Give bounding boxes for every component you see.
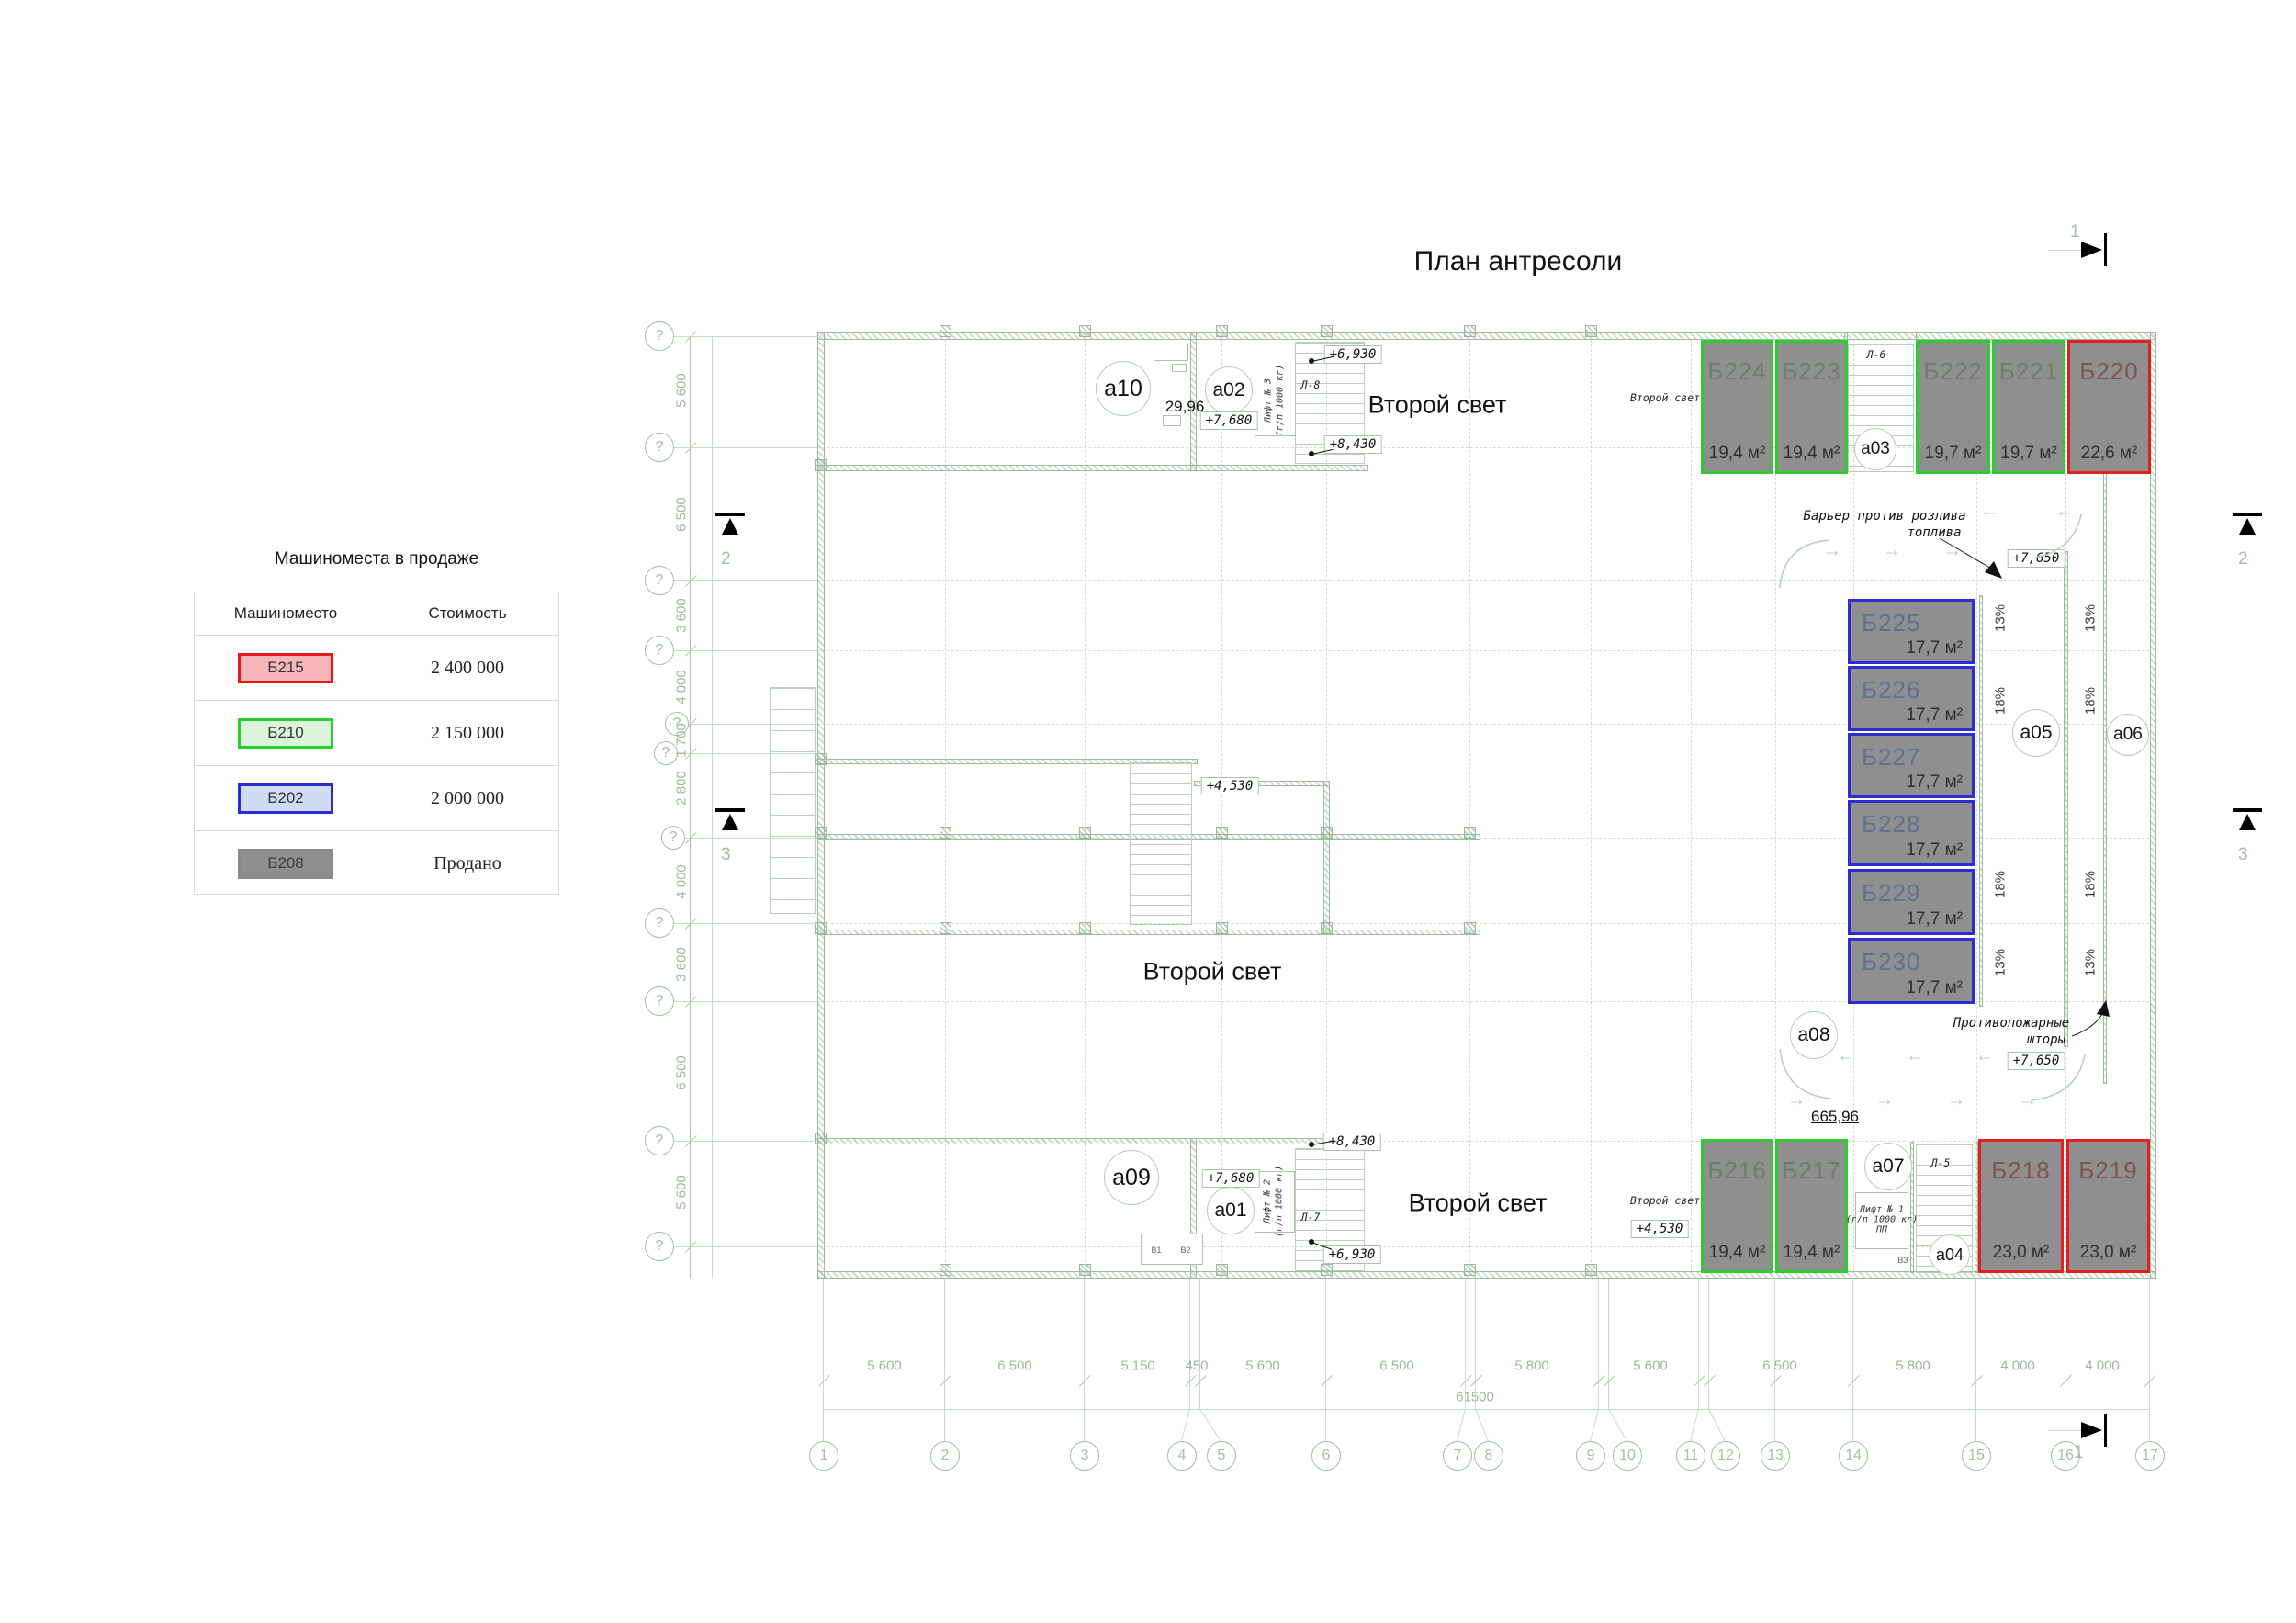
dimension-line (712, 336, 713, 1279)
grid-extension-line (674, 1141, 817, 1142)
dimension-label: 5 800 (1896, 1358, 1930, 1374)
plan-text: Лифт № 2 (1263, 1179, 1273, 1223)
grid-extension-line (1598, 1279, 1599, 1409)
grid-bubble-leader (1475, 1409, 1489, 1441)
stall-area: 17,7 м² (1906, 909, 1963, 930)
plan-text: 665,96 (1811, 1108, 1859, 1126)
grid-extension-line (674, 923, 817, 924)
grid-line-vertical (1221, 340, 1222, 1271)
drive-arrow: ← (1837, 1046, 1855, 1067)
grid-line-vertical (1976, 340, 1977, 1271)
column-mark (1321, 922, 1333, 934)
grid-bubble-4: 4 (1167, 1441, 1197, 1471)
shaft (1154, 344, 1188, 361)
stall-label: Б223 (1778, 357, 1845, 386)
stall-area: 19,4 м² (1704, 444, 1771, 464)
grid-bubble-13: 13 (1761, 1441, 1790, 1471)
wall (2064, 551, 2068, 1047)
grid-line-vertical (1691, 340, 1692, 1271)
grid-bubble-12: 12 (1711, 1441, 1740, 1471)
grid-line-vertical (1085, 340, 1086, 1271)
section-marker-bar (2104, 1414, 2107, 1447)
grid-bubble-letter: ? (645, 986, 674, 1016)
column-mark (1216, 325, 1228, 337)
slope-label: 18% (1993, 687, 2009, 715)
drive-arrow: → (2019, 1090, 2037, 1111)
drive-arrow: → (1947, 1090, 1965, 1111)
slope-label: 13% (2083, 604, 2099, 632)
stall-area: 19,7 м² (1919, 444, 1987, 464)
column-mark (1216, 827, 1228, 839)
grid-bubble-letter: ? (645, 321, 674, 351)
drawing-canvas: План антресоли Машиноместа в продаже Маш… (0, 0, 2296, 1623)
dimension-label: 1 700 (674, 723, 690, 758)
grid-bubble-6: 6 (1311, 1441, 1341, 1471)
grid-bubble-leader (1708, 1409, 1726, 1441)
dimension-label: 4 000 (674, 670, 690, 704)
plan-text: Второй свет (1630, 1194, 1700, 1207)
plan-text: Л-5 (1931, 1156, 1951, 1169)
drive-arrow: → (1883, 541, 1901, 562)
grid-bubble-10: 10 (1613, 1441, 1642, 1471)
stall-label: Б224 (1704, 357, 1771, 386)
grid-extension-line (1774, 1279, 1775, 1409)
dimension-label: 6 500 (674, 1055, 690, 1090)
dimension-label: 5 600 (1633, 1358, 1668, 1374)
stall-area: 17,7 м² (1906, 705, 1963, 726)
room-tag-а01: а01 (1207, 1187, 1255, 1234)
grid-extension-line (1199, 1279, 1200, 1409)
column-mark (815, 459, 827, 471)
column-mark (1079, 325, 1091, 337)
plan-text: В1 (1151, 1245, 1161, 1255)
column-mark (815, 1133, 827, 1144)
section-marker-arrow (722, 518, 738, 535)
section-marker-arrow (722, 814, 738, 830)
grid-extension-line (678, 753, 817, 754)
grid-extension-line (1708, 1279, 1709, 1409)
stall-label: Б229 (1862, 879, 1972, 907)
plan-text: (г/п 1000 кг) (1275, 1166, 1285, 1237)
grid-extension-line (944, 1279, 945, 1409)
stall-Б229: Б22917,7 м² (1848, 869, 1975, 935)
stall-area: 17,7 м² (1906, 840, 1963, 861)
grid-extension-line (1084, 1279, 1085, 1409)
dimension-label: 6 500 (1762, 1358, 1797, 1374)
elevation-mark: +7,650 (2008, 549, 2065, 568)
grid-line-vertical (945, 340, 946, 1271)
grid-extension-line (674, 1001, 817, 1002)
section-marker-bar (715, 513, 745, 516)
grid-extension-line (1852, 1279, 1853, 1409)
grid-bubble-leader (1774, 1409, 1775, 1441)
room-tag-а03: а03 (1854, 428, 1896, 470)
column-mark (1216, 1264, 1228, 1276)
drive-arrow: → (1875, 1090, 1894, 1111)
dimension-line (824, 1381, 2150, 1381)
room-tag-а08: а08 (1790, 1011, 1838, 1059)
grid-extension-line (1465, 1279, 1466, 1409)
grid-bubble-leader (944, 1409, 945, 1441)
wall (817, 1138, 1368, 1144)
column-mark (940, 827, 951, 839)
column-mark (940, 1264, 951, 1276)
stall-label: Б227 (1862, 743, 1972, 772)
elevation-mark: +8,430 (1324, 435, 1382, 454)
dimension-label: 5 150 (1120, 1358, 1155, 1374)
dimension-label: 6 500 (674, 497, 690, 532)
slope-label: 18% (2083, 871, 2099, 898)
plan-text: Барьер против розлива (1803, 509, 1965, 524)
stall-area: 19,4 м² (1778, 1243, 1845, 1263)
plan-text: (г/п 1000 кг) (1276, 365, 1286, 436)
column-mark (1585, 1264, 1597, 1276)
column-mark (1079, 922, 1091, 934)
grid-bubble-5: 5 (1207, 1441, 1236, 1471)
wall (2150, 332, 2156, 1279)
stall-label: Б226 (1862, 676, 1972, 704)
column-mark (815, 753, 827, 765)
grid-bubble-letter: ? (645, 1126, 674, 1155)
shaft (1163, 415, 1181, 426)
dimension-label: 3 600 (674, 947, 690, 982)
stall-Б223: Б22319,4 м² (1775, 340, 1848, 474)
room-tag-а10: а10 (1096, 361, 1151, 416)
plan-text: ПП (1876, 1225, 1887, 1235)
floor-plan: Б22419,4 м²Б22319,4 м²Б22219,7 м²Б22119,… (0, 0, 2296, 1623)
plan-text: Второй свет (1143, 958, 1282, 986)
section-marker-number: 1 (2070, 222, 2080, 242)
section-marker-leader (2048, 1430, 2081, 1431)
grid-bubble-11: 11 (1676, 1441, 1705, 1471)
grid-line-vertical (1469, 340, 1470, 1271)
grid-bubble-14: 14 (1839, 1441, 1868, 1471)
stall-Б220: Б22022,6 м² (2067, 340, 2151, 474)
column-mark (940, 325, 951, 337)
wall (2103, 459, 2107, 1084)
slope-label: 13% (1993, 949, 2009, 976)
section-marker-number: 3 (2238, 845, 2248, 865)
dimension-label: 5 600 (1245, 1358, 1280, 1374)
room-tag-а09: а09 (1104, 1150, 1159, 1205)
drive-arrow: ← (1975, 1046, 1994, 1067)
section-marker-bar (2104, 233, 2107, 266)
stall-label: Б228 (1862, 810, 1972, 839)
plan-text: В2 (1180, 1245, 1190, 1255)
grid-extension-line (1698, 1279, 1699, 1409)
grid-bubble-7: 7 (1443, 1441, 1472, 1471)
grid-bubble-leader (1199, 1409, 1221, 1442)
stall-area: 19,4 м² (1704, 1243, 1771, 1263)
dimension-line (824, 1409, 2150, 1410)
wall (1323, 781, 1330, 935)
column-mark (1464, 325, 1476, 337)
section-marker-bar (2233, 808, 2262, 812)
slope-label: 13% (2083, 949, 2099, 976)
drive-arrow: → (1823, 541, 1841, 562)
dimension-label: 3 600 (674, 598, 690, 633)
grid-bubble-leader (2149, 1409, 2150, 1441)
stall-Б222: Б22219,7 м² (1916, 340, 1990, 474)
plan-text: Второй свет (1409, 1189, 1548, 1218)
column-mark (1464, 922, 1476, 934)
dimension-label: 5 600 (867, 1358, 902, 1374)
grid-bubble-2: 2 (930, 1441, 960, 1471)
stall-Б226: Б22617,7 м² (1848, 666, 1975, 731)
slope-label: 18% (2083, 687, 2099, 715)
section-marker-number: 1 (2074, 1443, 2084, 1463)
column-mark (1464, 827, 1476, 839)
room-tag-а06: а06 (2107, 714, 2149, 756)
stall-label: Б222 (1919, 357, 1987, 386)
dimension-label: 450 (1185, 1358, 1208, 1374)
shaft (1172, 364, 1187, 372)
grid-bubble-leader (1608, 1409, 1627, 1441)
stall-area: 17,7 м² (1906, 978, 1963, 998)
grid-bubble-letter: ? (645, 908, 674, 938)
dimension-label: 4 000 (2085, 1358, 2120, 1374)
section-marker-arrow (2081, 1422, 2102, 1438)
stall-area: 22,6 м² (2070, 444, 2148, 464)
room-tag-а05: а05 (2012, 709, 2060, 757)
plan-text: Л-6 (1867, 348, 1886, 361)
stall-label: Б217 (1778, 1156, 1845, 1185)
grid-bubble-letter: ? (645, 1232, 674, 1261)
stall-label: Б216 (1704, 1156, 1771, 1185)
grid-bubble-leader (1690, 1409, 1699, 1441)
plan-text: Второй свет (1630, 391, 1700, 404)
plan-text: Второй свет (1368, 391, 1507, 420)
room-tag-а07: а07 (1864, 1143, 1912, 1190)
grid-extension-line (1475, 1279, 1476, 1409)
grid-bubble-letter: ? (645, 566, 674, 595)
grid-bubble-8: 8 (1474, 1441, 1503, 1471)
grid-line-vertical (1591, 340, 1592, 1271)
section-marker-bar (2233, 513, 2262, 516)
stall-label: Б220 (2070, 357, 2148, 386)
stall-Б230: Б23017,7 м² (1848, 938, 1975, 1004)
section-marker-number: 3 (721, 845, 731, 865)
dimension-label: 5 600 (674, 373, 690, 408)
grid-bubble-leader (1181, 1409, 1190, 1441)
grid-bubble-9: 9 (1576, 1441, 1605, 1471)
dimension-label: 4 000 (2000, 1358, 2035, 1374)
dimension-label: 6 500 (997, 1358, 1032, 1374)
stall-Б219: Б21923,0 м² (2066, 1139, 2150, 1273)
grid-bubble-letter: ? (661, 826, 685, 850)
section-marker-leader (2048, 250, 2081, 251)
column-mark (1321, 827, 1333, 839)
plan-text: Л-8 (1301, 378, 1321, 391)
shaft (1141, 1234, 1203, 1265)
stall-label: Б225 (1862, 609, 1972, 637)
grid-extension-line (2149, 1279, 2150, 1409)
grid-extension-line (1325, 1279, 1326, 1409)
plan-text: шторы (2027, 1032, 2065, 1047)
grid-bubble-leader (2065, 1409, 2065, 1441)
section-marker-number: 2 (2238, 549, 2248, 569)
grid-bubble-letter: ? (645, 636, 674, 665)
elevation-mark: +4,530 (1631, 1220, 1689, 1238)
dimension-label: 6 500 (1379, 1358, 1414, 1374)
dimension-label: 5 600 (674, 1175, 690, 1210)
stall-label: Б219 (2069, 1156, 2147, 1185)
grid-bubble-leader (823, 1409, 824, 1441)
column-mark (1216, 922, 1228, 934)
elevation-mark: +6,930 (1324, 345, 1382, 364)
column-mark (940, 922, 951, 934)
drive-arrow: ← (1906, 1046, 1924, 1067)
grid-extension-line (674, 1246, 817, 1247)
grid-extension-line (685, 838, 817, 839)
stall-area: 23,0 м² (2069, 1243, 2147, 1263)
column-mark (1321, 325, 1333, 337)
plan-text: Лифт № 3 (1264, 378, 1274, 423)
wall (817, 930, 1480, 935)
grid-extension-line (1189, 1279, 1190, 1409)
staircase (1130, 762, 1192, 925)
plan-text: топлива (1907, 525, 1961, 540)
dimension-label: 4 000 (674, 864, 690, 899)
stall-label: Б230 (1862, 948, 1972, 976)
stall-Б228: Б22817,7 м² (1848, 800, 1975, 866)
grid-bubble-leader (1325, 1409, 1326, 1441)
stall-Б221: Б22119,7 м² (1992, 340, 2065, 474)
dimension-line (690, 336, 691, 1279)
grid-extension-line (674, 336, 817, 337)
grid-extension-line (1975, 1279, 1976, 1409)
grid-extension-line (823, 1279, 824, 1409)
plan-text: Противопожарные (1953, 1016, 2069, 1031)
stall-area: 19,7 м² (1995, 444, 2063, 464)
drive-arrow: ← (1980, 502, 1998, 523)
grid-bubble-leader (1975, 1409, 1976, 1441)
stall-area: 23,0 м² (1981, 1243, 2061, 1263)
section-marker-arrow (2239, 814, 2256, 830)
column-mark (1079, 827, 1091, 839)
column-mark (1464, 1264, 1476, 1276)
elevation-mark: +7,650 (2008, 1052, 2065, 1070)
stall-Б217: Б21719,4 м² (1775, 1139, 1848, 1273)
dimension-label: 5 800 (1514, 1358, 1549, 1374)
wall (1979, 595, 1983, 1007)
section-marker-arrow (2081, 242, 2102, 258)
drive-arrow: ← (2055, 502, 2074, 523)
drive-arrow: → (1787, 1090, 1806, 1111)
grid-bubble-leader (1852, 1409, 1853, 1441)
elevation-mark: +4,530 (1201, 777, 1259, 795)
room-tag-а02: а02 (1205, 366, 1253, 414)
stall-Б225: Б22517,7 м² (1848, 599, 1975, 664)
grid-extension-line (1608, 1279, 1609, 1409)
grid-bubble-letter: ? (645, 433, 674, 462)
grid-extension-line (674, 447, 817, 448)
section-marker-bar (715, 808, 745, 812)
plan-text: 29,96 (1165, 398, 1205, 416)
plan-text: Л-7 (1301, 1211, 1321, 1223)
section-marker-arrow (2239, 518, 2256, 535)
stall-label: Б218 (1981, 1156, 2061, 1185)
external-stair (770, 687, 816, 914)
grid-bubble-3: 3 (1070, 1441, 1099, 1471)
grid-bubble-17: 17 (2135, 1441, 2165, 1471)
plan-text: Лифт № 1 (1860, 1205, 1904, 1215)
grid-line-vertical (1775, 340, 1776, 1271)
grid-bubble-15: 15 (1962, 1441, 1991, 1471)
grid-extension-line (674, 650, 817, 651)
stall-area: 19,4 м² (1778, 444, 1845, 464)
elevation-mark: +7,680 (1202, 1169, 1260, 1188)
stall-label: Б221 (1995, 357, 2063, 386)
stall-Б216: Б21619,4 м² (1701, 1139, 1773, 1273)
wall (817, 465, 1368, 471)
grid-bubble-leader (1084, 1409, 1085, 1441)
plan-text: ВЗ (1897, 1256, 1908, 1265)
grid-extension-line (689, 724, 817, 725)
grid-bubble-leader (1590, 1409, 1599, 1441)
slope-label: 18% (1993, 871, 2009, 898)
dimension-label: 2 800 (674, 771, 690, 806)
column-mark (1321, 1264, 1333, 1276)
stall-Б224: Б22419,4 м² (1701, 340, 1773, 474)
column-mark (1079, 1264, 1091, 1276)
column-mark (1585, 325, 1597, 337)
elevation-mark: +7,680 (1200, 411, 1258, 430)
plan-text: (г/п 1000 кг) (1846, 1215, 1918, 1225)
stall-Б227: Б22717,7 м² (1848, 733, 1975, 798)
room-tag-а04: а04 (1930, 1234, 1970, 1275)
slope-label: 13% (1993, 604, 2009, 632)
stall-Б218: Б21823,0 м² (1978, 1139, 2064, 1273)
drive-arrow: → (1943, 541, 1962, 562)
stall-area: 17,7 м² (1906, 772, 1963, 793)
grid-extension-line (2065, 1279, 2065, 1409)
section-marker-number: 2 (721, 549, 731, 569)
stall-area: 17,7 м² (1906, 638, 1963, 659)
grid-line-horizontal (698, 580, 2149, 581)
grid-extension-line (674, 580, 817, 581)
grid-bubble-leader (1457, 1409, 1466, 1441)
wall (817, 332, 2156, 340)
grid-bubble-1: 1 (809, 1441, 838, 1471)
